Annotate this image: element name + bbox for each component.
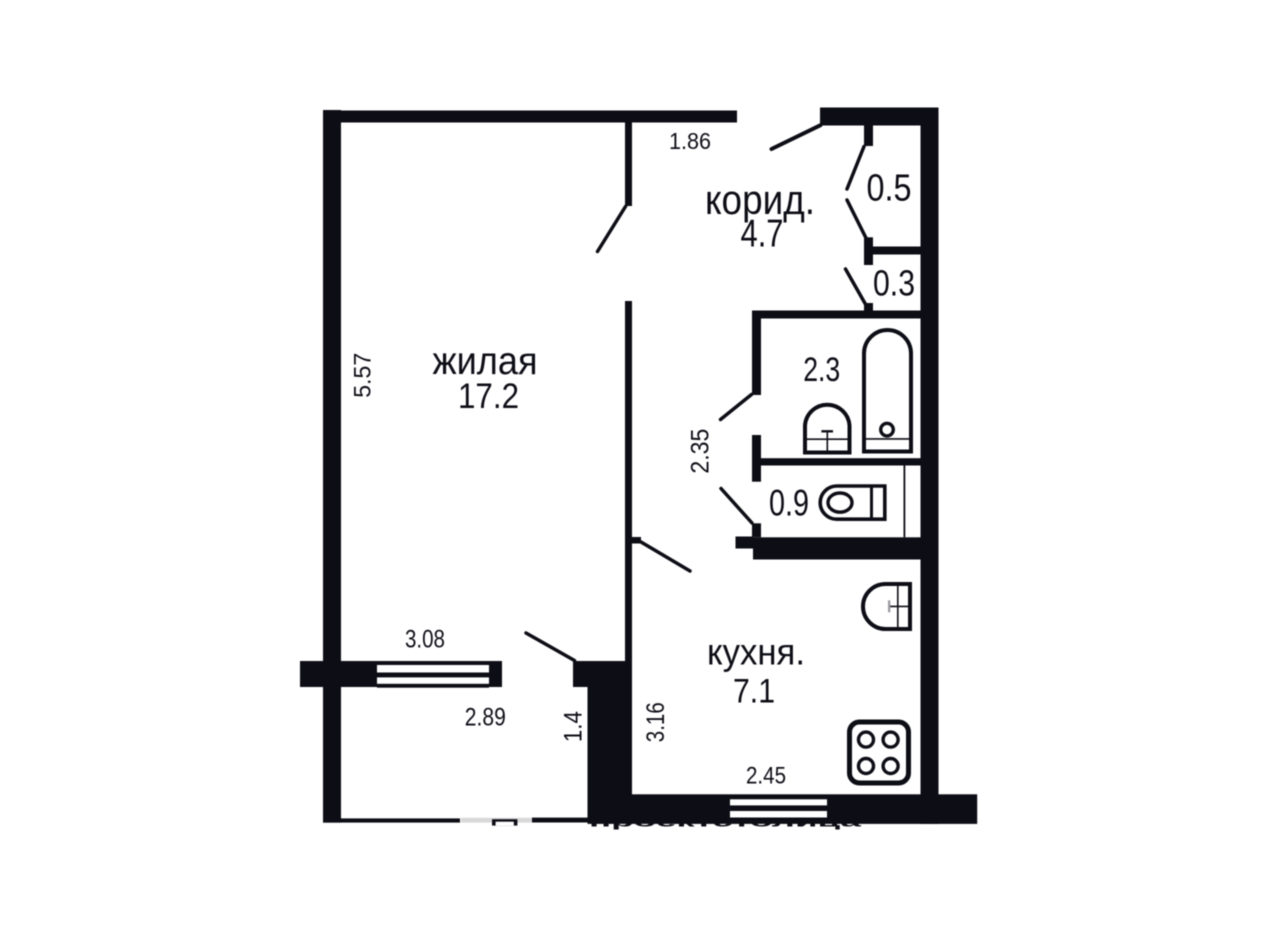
svg-text:2.3: 2.3 [803,351,840,389]
svg-text:3.08: 3.08 [405,626,445,654]
svg-text:0.9: 0.9 [769,482,809,523]
svg-text:0.3: 0.3 [873,263,915,304]
svg-text:1.4: 1.4 [560,711,588,742]
svg-text:7.1: 7.1 [733,673,775,711]
svg-text:3.16: 3.16 [642,702,670,742]
svg-text:4.7: 4.7 [741,213,784,256]
svg-text:кухня.: кухня. [707,632,805,673]
svg-text:1.86: 1.86 [669,128,711,154]
svg-text:2.35: 2.35 [688,429,715,474]
svg-text:5.57: 5.57 [350,353,377,398]
svg-text:2.45: 2.45 [746,762,786,789]
svg-text:2.89: 2.89 [465,704,506,731]
svg-text:17.2: 17.2 [458,377,519,416]
svg-text:проектстолица: проектстолица [589,814,863,831]
svg-text:0.5: 0.5 [867,168,912,210]
